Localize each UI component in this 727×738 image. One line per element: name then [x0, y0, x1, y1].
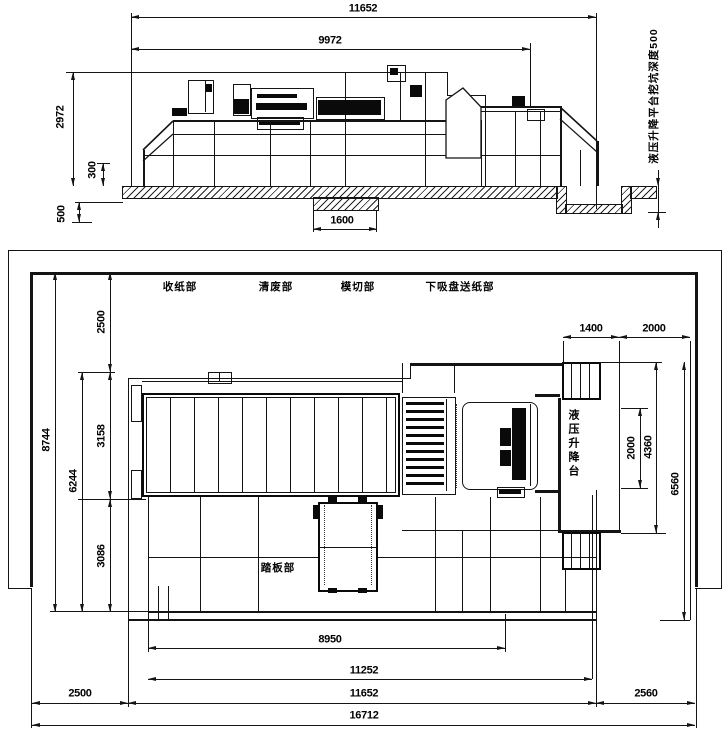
fence-bottom — [128, 619, 596, 621]
platform-bottom — [148, 611, 596, 613]
pit-depth-note: 液压升降平台挖坑深度500 — [649, 28, 660, 164]
dim-bottom-fence: 11652 — [350, 689, 378, 700]
pit-floor — [565, 204, 623, 214]
lift-step-bottom — [562, 532, 601, 570]
dim-notch: 1600 — [330, 216, 353, 227]
dim-bottom-right: 2560 — [634, 689, 657, 700]
dim-left-chain-1: 2500 — [97, 310, 108, 333]
dim-right-inner: 2000 — [627, 436, 638, 459]
pedal-label: 踏板部 — [261, 563, 296, 574]
dim-right-outer: 6560 — [671, 472, 682, 495]
dim-foundation: 500 — [57, 205, 68, 222]
machine-installation-drawing: 11652 9972 2972 300 500 — [0, 0, 727, 738]
lift-step-top — [562, 362, 601, 400]
dim-bottom-feeder: 11252 — [350, 666, 378, 677]
dim-left-chain-3: 3086 — [97, 544, 108, 567]
lift-platform-label: 液压升降台 — [567, 409, 578, 479]
dim-top-right-1: 1400 — [579, 324, 602, 335]
dim-left-total: 8744 — [42, 428, 53, 451]
dim-height: 2972 — [56, 105, 67, 128]
dim-bottom-machine: 8950 — [318, 635, 341, 646]
room-wall-top — [30, 272, 698, 275]
section-label-stripping: 清废部 — [259, 282, 294, 293]
dim-right-mid: 4360 — [644, 435, 655, 458]
floor-notch — [313, 197, 379, 211]
dim-body-width: 9972 — [318, 36, 341, 47]
section-label-delivery: 收纸部 — [163, 282, 198, 293]
section-label-feeder: 下吸盘送纸部 — [426, 282, 495, 293]
dim-top-right-2: 2000 — [642, 324, 665, 335]
dim-left-chain-2: 3158 — [97, 424, 108, 447]
dim-bottom-total: 16712 — [349, 711, 378, 722]
section-label-diecut: 模切部 — [341, 282, 376, 293]
dim-overall-width: 11652 — [349, 4, 377, 15]
dim-slab: 300 — [88, 161, 99, 178]
pit-wall — [621, 186, 632, 214]
dim-left-inner-total: 6244 — [69, 469, 80, 492]
dim-bottom-left: 2500 — [68, 689, 91, 700]
room-wall-left — [30, 272, 33, 587]
room-wall-right — [695, 272, 698, 587]
